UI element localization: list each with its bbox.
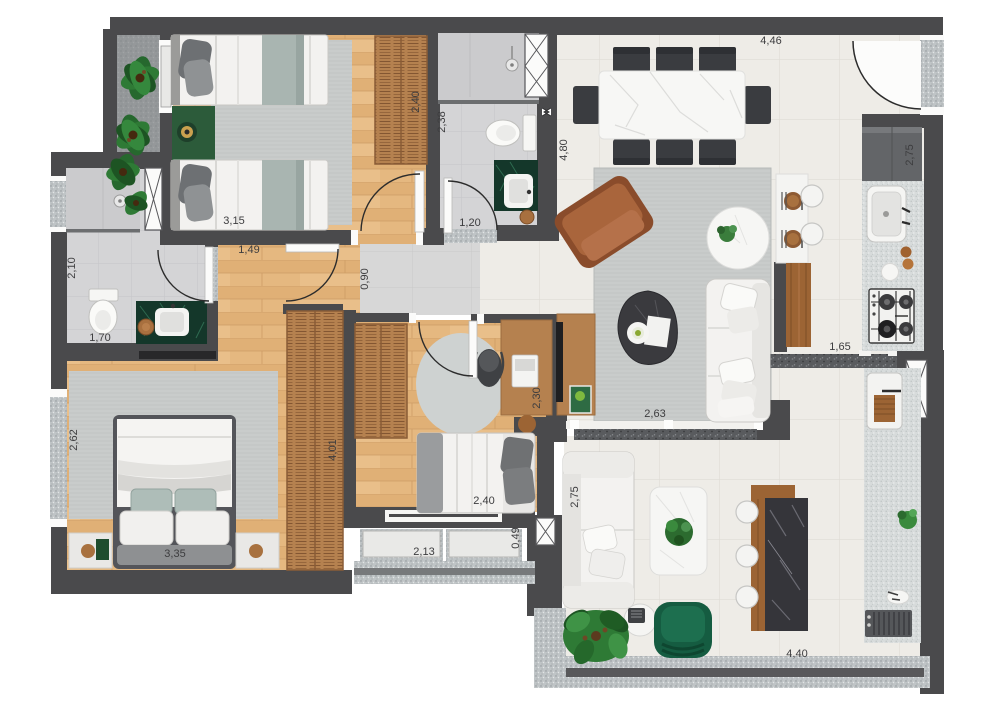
svg-text:2,40: 2,40 xyxy=(410,91,422,112)
svg-text:1,20: 1,20 xyxy=(459,217,480,229)
svg-text:4,01: 4,01 xyxy=(327,439,339,460)
svg-text:2,63: 2,63 xyxy=(644,408,665,420)
svg-text:4,40: 4,40 xyxy=(786,648,807,660)
svg-text:0,90: 0,90 xyxy=(359,268,371,289)
svg-text:2,62: 2,62 xyxy=(68,429,80,450)
svg-text:2,13: 2,13 xyxy=(413,546,434,558)
svg-text:0,49: 0,49 xyxy=(510,527,522,548)
svg-text:2,10: 2,10 xyxy=(66,257,78,278)
svg-text:4,46: 4,46 xyxy=(760,35,781,47)
svg-text:2,38: 2,38 xyxy=(436,111,448,132)
svg-text:2,75: 2,75 xyxy=(904,144,916,165)
svg-text:3,15: 3,15 xyxy=(223,215,244,227)
svg-text:2,30: 2,30 xyxy=(531,387,543,408)
svg-text:2,40: 2,40 xyxy=(473,495,494,507)
svg-text:1,65: 1,65 xyxy=(829,341,850,353)
svg-text:4,80: 4,80 xyxy=(558,139,570,160)
svg-text:1,70: 1,70 xyxy=(89,332,110,344)
svg-text:3,35: 3,35 xyxy=(164,548,185,560)
svg-text:2,75: 2,75 xyxy=(569,486,581,507)
svg-text:1,49: 1,49 xyxy=(238,244,259,256)
